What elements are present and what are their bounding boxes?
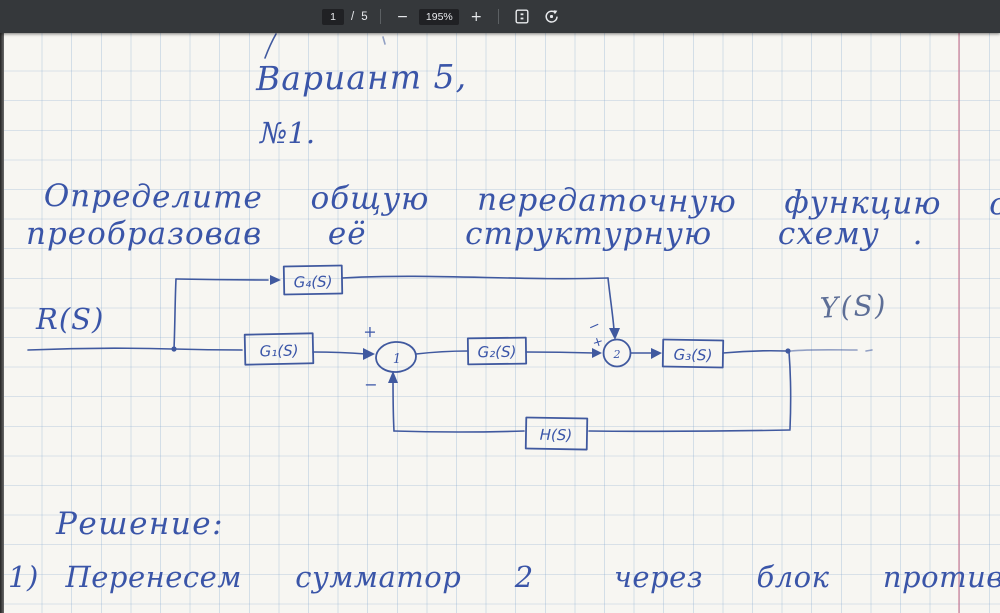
signal-line-input	[28, 346, 242, 351]
block-g2-label: G₂(S)	[477, 343, 516, 362]
junction-2-label: 2	[613, 348, 621, 361]
pdf-viewer-window: / 5 − 195% +	[0, 0, 1000, 613]
junction-1-plus-sign: +	[363, 322, 376, 341]
zoom-out-button[interactable]: −	[393, 8, 413, 26]
zoom-level: 195%	[419, 9, 459, 25]
junction-1-label: 1	[393, 352, 401, 367]
page-number-input[interactable]	[322, 9, 344, 25]
feedback-path-h	[388, 352, 791, 432]
page-total: 5	[361, 11, 367, 23]
junction-1-minus-sign: −	[364, 375, 377, 394]
diagram-output-label: Y(S)	[819, 288, 888, 324]
block-h: H(S)	[526, 417, 588, 449]
solution-step-1: 1) Перенесем сумматор 2 через блок проти…	[8, 560, 1000, 594]
summing-junction-1: 1 + −	[363, 322, 417, 394]
feedforward-path-g4	[174, 275, 620, 349]
signal-line-output	[723, 348, 872, 353]
block-g1: G₁(S)	[245, 333, 314, 364]
block-g1-label: G₁(S)	[259, 342, 298, 361]
block-g3: G₃(S)	[663, 339, 723, 367]
block-g4: G₄(S)	[284, 265, 342, 294]
task-text-line2: преобразовав её структурную схему .	[26, 216, 923, 252]
page-divider: /	[351, 11, 354, 23]
signal-line-g2-j2	[526, 348, 602, 358]
block-g2: G₂(S)	[468, 338, 526, 365]
signal-line-g1-j1	[313, 348, 375, 360]
block-g4-label: G₄(S)	[293, 273, 332, 292]
summing-junction-2: 2 − +	[586, 317, 631, 367]
zoom-in-button[interactable]: +	[466, 8, 486, 26]
toolbar-separator	[498, 9, 499, 24]
fit-page-button[interactable]	[511, 7, 533, 26]
block-g3-label: G₃(S)	[673, 346, 712, 365]
solution-heading: Решение:	[56, 506, 224, 542]
toolbar-controls: / 5 − 195% +	[322, 0, 563, 33]
stray-stroke	[265, 34, 385, 58]
rotate-counterclockwise-icon	[544, 9, 559, 24]
pdf-toolbar: / 5 − 195% +	[0, 0, 1000, 33]
fit-to-page-icon	[515, 9, 529, 24]
signal-line-j1-g2	[416, 351, 468, 354]
toolbar-separator	[380, 9, 381, 24]
rotate-button[interactable]	[540, 7, 563, 26]
variant-title: Вариант 5,	[256, 57, 467, 98]
task-number: №1.	[260, 116, 315, 150]
diagram-input-label: R(S)	[36, 302, 104, 336]
block-h-label: H(S)	[540, 426, 573, 445]
signal-line-j2-g3	[631, 348, 662, 359]
